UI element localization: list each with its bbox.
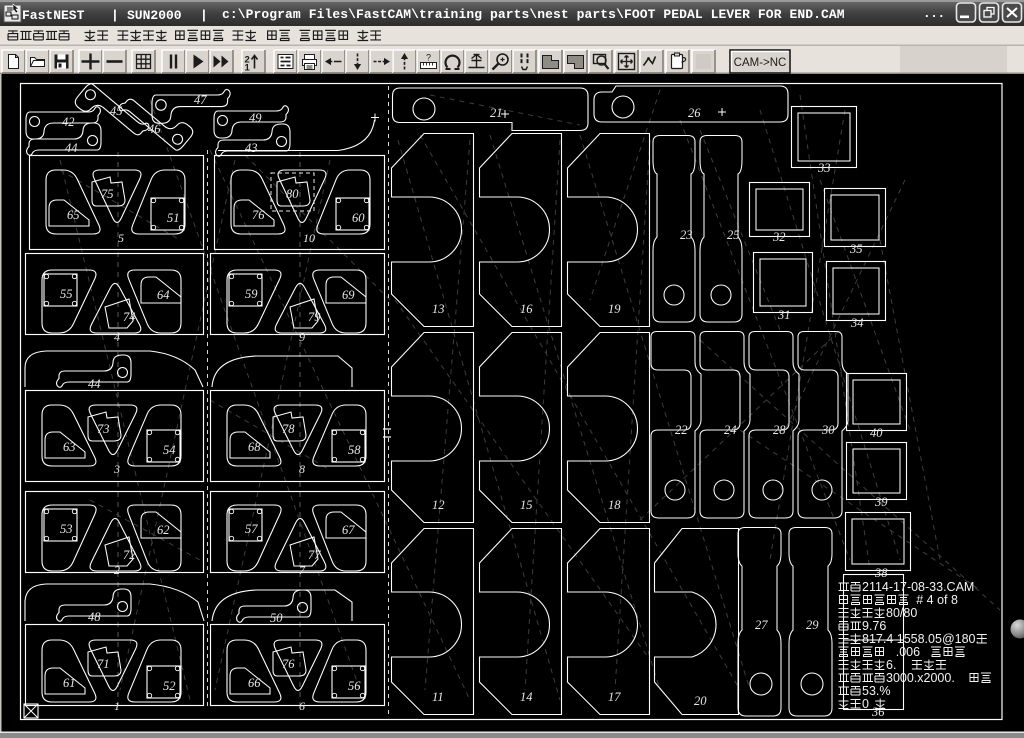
svg-text:14: 14 <box>520 690 533 704</box>
svg-text:47: 47 <box>194 93 207 107</box>
svg-text:62: 62 <box>157 523 170 537</box>
svg-text:?: ? <box>426 53 431 63</box>
svg-text:SUN2000: SUN2000 <box>127 8 182 23</box>
svg-text:6: 6 <box>299 699 305 713</box>
svg-text:51: 51 <box>167 211 180 225</box>
svg-text:67: 67 <box>342 523 355 537</box>
svg-text:21: 21 <box>490 106 503 120</box>
svg-text:80: 80 <box>286 187 299 201</box>
svg-text:.006: .006 <box>886 645 920 659</box>
svg-text:2114-17-08-33.CAM: 2114-17-08-33.CAM <box>862 580 974 594</box>
svg-text:48: 48 <box>88 610 101 624</box>
svg-text:76: 76 <box>252 208 265 222</box>
svg-text:50: 50 <box>270 611 283 625</box>
svg-text:3000.x2000.: 3000.x2000. <box>886 671 955 685</box>
svg-text:17: 17 <box>608 690 621 704</box>
svg-text:75: 75 <box>101 187 114 201</box>
svg-text:71: 71 <box>97 657 110 671</box>
svg-text:40: 40 <box>870 426 883 440</box>
svg-text:11: 11 <box>432 690 444 704</box>
svg-text:1: 1 <box>245 63 251 74</box>
svg-text:18: 18 <box>608 498 621 512</box>
svg-text:33: 33 <box>817 161 831 175</box>
svg-text:817.4 1558.05@180.: 817.4 1558.05@180. <box>862 632 979 646</box>
svg-text:34: 34 <box>850 316 864 330</box>
svg-text:8: 8 <box>299 462 305 476</box>
svg-text:29: 29 <box>806 618 819 632</box>
svg-text:79: 79 <box>308 310 321 324</box>
svg-text:24: 24 <box>724 423 737 437</box>
svg-text:74: 74 <box>123 310 136 324</box>
svg-text:60: 60 <box>352 211 365 225</box>
svg-text:36: 36 <box>871 705 885 719</box>
svg-text:20: 20 <box>694 694 707 708</box>
svg-text:. . .: . . . <box>925 5 943 20</box>
svg-text:59: 59 <box>245 287 258 301</box>
svg-text:FastNEST: FastNEST <box>22 8 85 23</box>
svg-text:13: 13 <box>432 302 445 316</box>
svg-text:4: 4 <box>114 330 120 344</box>
svg-text:42: 42 <box>62 115 75 129</box>
svg-text:54: 54 <box>163 443 176 457</box>
svg-text:12: 12 <box>432 498 445 512</box>
svg-text:63: 63 <box>63 440 76 454</box>
svg-text:10: 10 <box>303 231 315 245</box>
svg-text:78: 78 <box>282 422 295 436</box>
svg-text:44: 44 <box>65 141 78 155</box>
svg-text:22: 22 <box>675 423 688 437</box>
svg-text:65: 65 <box>67 208 80 222</box>
svg-text:31: 31 <box>777 308 791 322</box>
svg-text:53.%: 53.% <box>862 684 891 698</box>
svg-text:16: 16 <box>520 302 533 316</box>
svg-text:57: 57 <box>245 522 258 536</box>
svg-text:0: 0 <box>862 697 869 711</box>
svg-text:2: 2 <box>114 563 120 577</box>
svg-text:25: 25 <box>727 228 740 242</box>
svg-text:1: 1 <box>114 699 120 713</box>
svg-text:7: 7 <box>299 563 306 577</box>
svg-text:49: 49 <box>249 111 262 125</box>
svg-text:|: | <box>200 8 208 23</box>
svg-text:30: 30 <box>821 423 835 437</box>
svg-text:52: 52 <box>163 679 176 693</box>
svg-text:27: 27 <box>755 618 768 632</box>
svg-text:# 4 of 8: # 4 of 8 <box>910 593 958 607</box>
svg-text:72: 72 <box>123 548 136 562</box>
svg-text:64: 64 <box>157 288 170 302</box>
svg-text:61: 61 <box>63 676 76 690</box>
svg-text:32: 32 <box>772 230 786 244</box>
svg-text:73: 73 <box>97 422 110 436</box>
svg-text:6.: 6. <box>886 658 896 672</box>
svg-text:76: 76 <box>282 657 295 671</box>
svg-text:9.76: 9.76 <box>862 619 886 633</box>
svg-text:|: | <box>111 8 119 23</box>
svg-text:28: 28 <box>773 423 786 437</box>
svg-text:43: 43 <box>245 141 258 155</box>
svg-text:c:\Program Files\FastCAM\train: c:\Program Files\FastCAM\training parts\… <box>222 7 845 22</box>
svg-text:19: 19 <box>608 302 621 316</box>
svg-text:35: 35 <box>849 242 863 256</box>
svg-text:9: 9 <box>299 330 305 344</box>
svg-text:CAM->NC: CAM->NC <box>734 57 787 69</box>
svg-text:39: 39 <box>874 495 888 509</box>
svg-text:55: 55 <box>60 287 73 301</box>
svg-text:5: 5 <box>118 231 124 245</box>
svg-text:80/80: 80/80 <box>886 606 917 620</box>
svg-text:53: 53 <box>60 522 73 536</box>
svg-text:3: 3 <box>113 462 120 476</box>
svg-text:58: 58 <box>348 443 361 457</box>
svg-text:68: 68 <box>248 440 261 454</box>
svg-text:26: 26 <box>688 106 701 120</box>
svg-text:38: 38 <box>874 566 888 580</box>
svg-text:77: 77 <box>308 548 321 562</box>
svg-text:15: 15 <box>520 498 533 512</box>
svg-text:56: 56 <box>348 679 361 693</box>
svg-text:46: 46 <box>148 122 161 136</box>
svg-text:66: 66 <box>248 676 261 690</box>
svg-text:69: 69 <box>342 288 355 302</box>
svg-text:23: 23 <box>680 228 693 242</box>
svg-text:44: 44 <box>88 377 101 391</box>
